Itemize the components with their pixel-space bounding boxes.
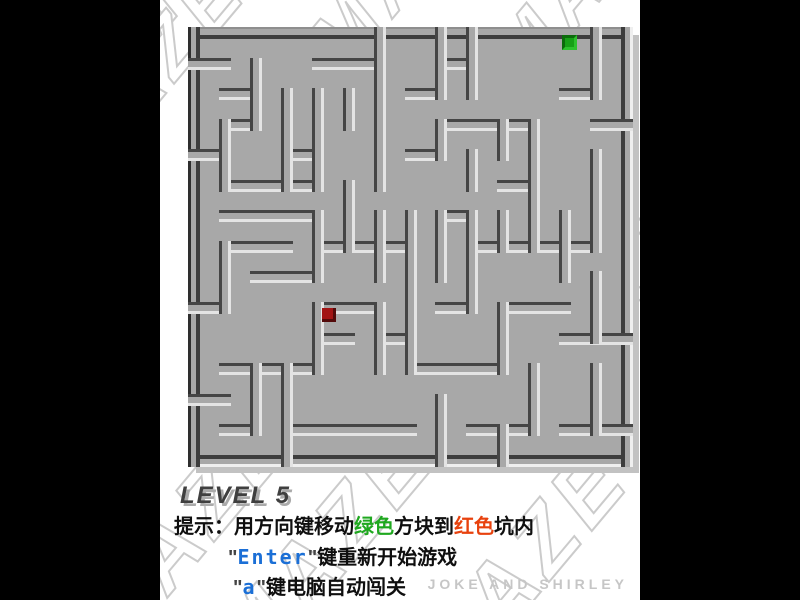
maze-wall (343, 88, 355, 131)
maze-wall (435, 119, 540, 131)
maze-wall (188, 58, 231, 70)
maze-wall (374, 210, 386, 283)
maze-wall (250, 394, 262, 437)
maze-wall (374, 27, 386, 192)
game-viewport[interactable]: MAZEMAZEMAZEMAZEMAZEMAZEMAZEMAZE LEVEL 5… (160, 0, 640, 600)
maze-wall (219, 119, 231, 192)
maze-wall (343, 180, 355, 253)
maze-wall (312, 241, 417, 253)
maze-wall (590, 27, 602, 100)
maze-wall (405, 363, 510, 375)
maze-wall (466, 210, 478, 314)
maze-wall (374, 302, 386, 375)
maze-wall (281, 424, 417, 436)
maze-wall (497, 424, 509, 467)
maze-wall (435, 119, 447, 162)
left-letterbox (0, 0, 160, 600)
right-letterbox (640, 0, 800, 600)
maze-board[interactable] (188, 27, 633, 467)
maze-wall (590, 363, 602, 436)
target-square-red (322, 308, 336, 322)
maze-wall (528, 119, 540, 253)
maze-wall (559, 210, 571, 283)
maze-outer-wall-right (621, 27, 633, 467)
maze-wall (497, 302, 509, 375)
maze-wall (250, 58, 262, 131)
maze-wall (466, 27, 478, 100)
screen: MAZEMAZEMAZEMAZEMAZEMAZEMAZEMAZE LEVEL 5… (0, 0, 800, 600)
maze-wall (219, 241, 231, 314)
maze-wall (590, 149, 602, 253)
maze-wall (528, 363, 540, 436)
maze-wall (497, 119, 509, 162)
maze-wall (590, 271, 602, 344)
maze-wall (435, 27, 447, 100)
maze-wall (281, 363, 293, 467)
maze-outer-wall-bottom (188, 455, 633, 467)
player-square-green[interactable] (562, 35, 577, 50)
maze-wall (281, 88, 293, 192)
maze-wall (405, 210, 417, 375)
maze-wall (219, 210, 324, 222)
maze-wall (219, 180, 324, 192)
maze-wall (497, 210, 509, 253)
maze-wall (188, 394, 231, 406)
maze-wall (312, 210, 324, 283)
maze-wall (435, 394, 447, 467)
maze-wall (435, 210, 447, 283)
maze-wall (219, 363, 324, 375)
maze-wall (466, 149, 478, 192)
maze-wall (312, 88, 324, 192)
maze-wall (590, 119, 633, 131)
